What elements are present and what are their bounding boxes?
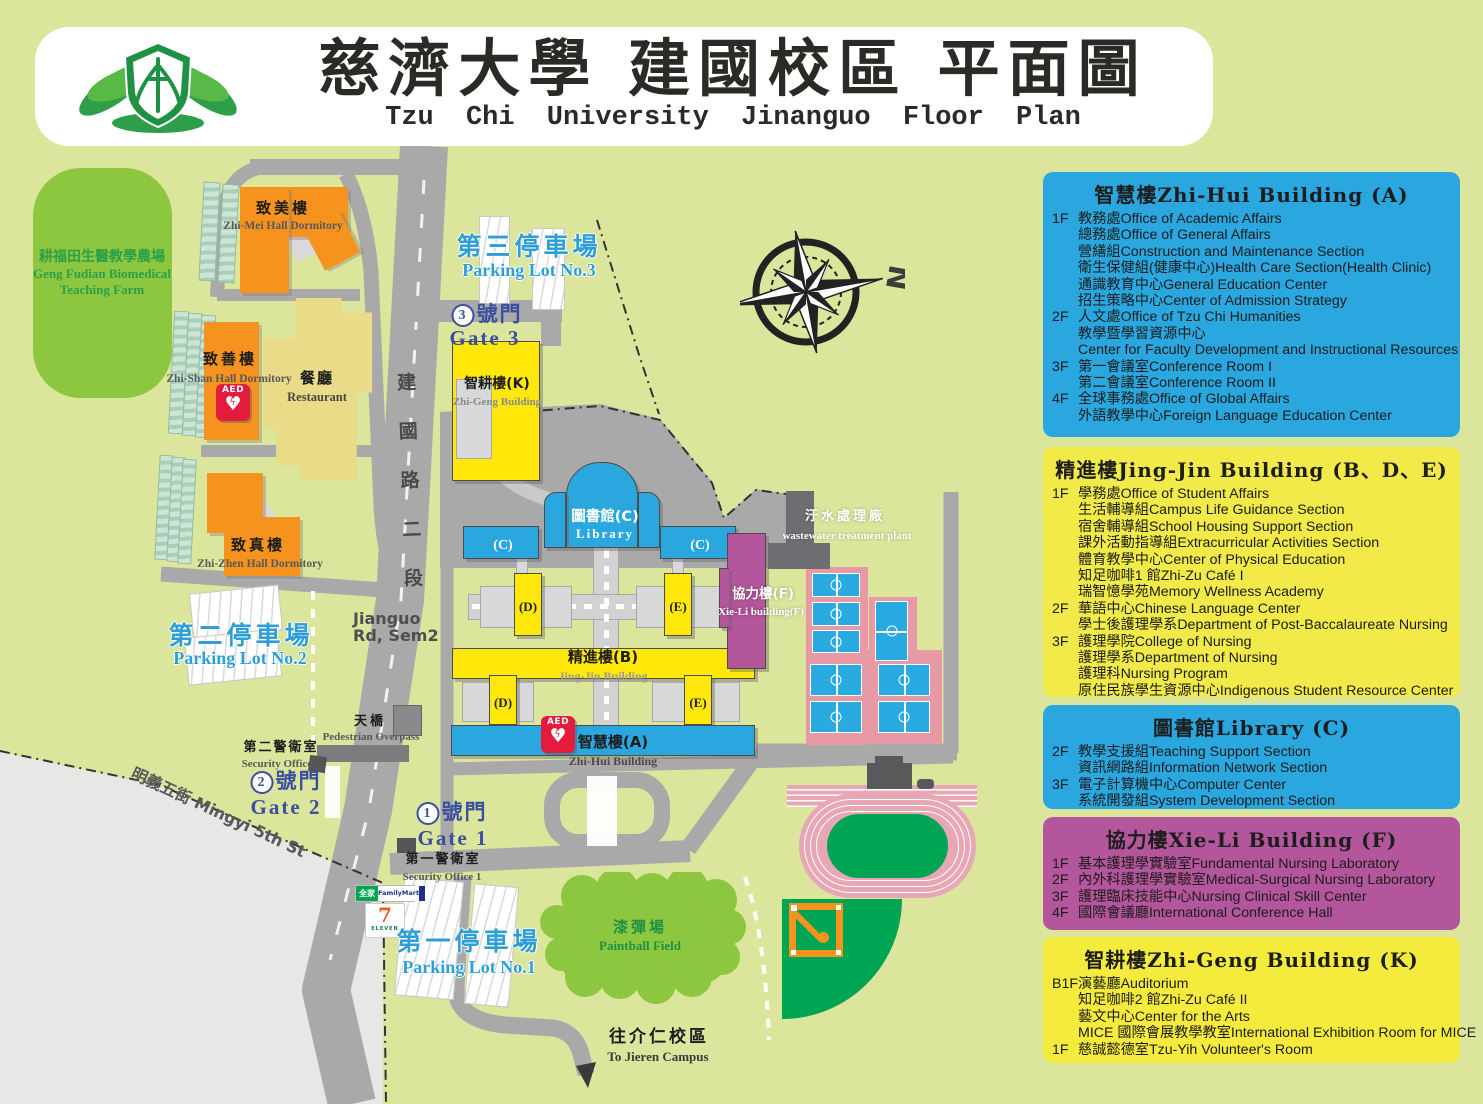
jieren-label-zh: 往介仁校區 — [609, 1027, 709, 1047]
legend-items: 1F學務處Office of Student Affairs生活輔導組Campu… — [1052, 486, 1451, 699]
farm-label-en: Geng Fudian Biomedical — [33, 266, 171, 281]
basketball-court — [878, 664, 930, 696]
paintball-label-en: Paintball Field — [599, 938, 681, 953]
aed-badge-zhihui: AED♥ϟ — [541, 716, 575, 753]
farm-label-zh: 耕福田生醫教學農場 — [39, 249, 165, 265]
jingjin-label-zh: 精進樓(B) — [568, 648, 638, 666]
zhihui-label-en: Zhi-Hui Building — [569, 754, 657, 768]
legend-title: 圖書館Library (C) — [1052, 712, 1451, 741]
basketball-court — [810, 664, 862, 696]
grandstand-top — [875, 756, 903, 764]
wastewater-label-zh: 汙水處理廠 — [805, 509, 885, 524]
zhizhen-label-zh: 致真樓 — [231, 536, 285, 554]
wing-letter-c-west: (C) — [493, 538, 512, 553]
familymart-en: FamilyMart — [378, 886, 419, 901]
legend-item: 2F內外科護理學實驗室Medical-Surgical Nursing Labo… — [1052, 872, 1451, 888]
poster-header: 慈濟大學 建國校區 平面圖 Tzu Chi University Jinangu… — [35, 27, 1213, 146]
zhishan-label-en: Zhi-Shan Hall Dormitory — [166, 373, 291, 385]
legend-item: 1F慈誠懿德室Tzu-Yih Volunteer's Room — [1052, 1042, 1451, 1058]
gate3-label-zh: 3號門 — [452, 302, 523, 326]
legend-item: 課外活動指導組Extracurricular Activities Sectio… — [1052, 535, 1451, 551]
parking1-label-zh: 第一停車場 — [396, 929, 541, 956]
legend-item: 1F學務處Office of Student Affairs — [1052, 486, 1451, 502]
legend-panel-xieli: 協力樓Xie-Li Building (F) 1F基本護理學實驗室Fundame… — [1043, 817, 1460, 930]
parking2-label-en: Parking Lot No.2 — [173, 648, 307, 668]
legend-title: 協力樓Xie-Li Building (F) — [1052, 824, 1451, 853]
legend-item: 4F全球事務處Office of Global Affairs — [1052, 391, 1451, 407]
poster-subtitle: Tzu Chi University Jinanguo Floor Plan — [253, 103, 1213, 133]
legend-item: 衛生保健組(健康中心)Health Care Section(Health Cl… — [1052, 260, 1451, 276]
legend-item: MICE 國際會展教學教室International Exhibition Ro… — [1052, 1025, 1451, 1041]
legend-item: 3F護理學院College of Nursing — [1052, 634, 1451, 650]
wing-letter-d-north: (D) — [519, 599, 537, 614]
jingjin-label-en: Jing-Jin Building — [558, 669, 647, 683]
restaurant-label-en: Restaurant — [287, 390, 347, 404]
aed-badge-dorm: AED♥ϟ — [216, 384, 250, 421]
parking1-label-en: Parking Lot No.1 — [402, 957, 536, 977]
library-lobe — [544, 492, 566, 548]
overpass-label-en: Pedestrian Overpass — [323, 731, 420, 743]
xieli-building-notch — [719, 568, 729, 628]
paintball-label-zh: 漆彈場 — [613, 918, 667, 936]
legend-item: 資訊網路組Information Network Section — [1052, 760, 1451, 776]
aed-heart-icon: ♥ϟ — [549, 728, 566, 745]
poster-title: 慈濟大學 建國校區 平面圖 — [253, 37, 1213, 101]
tennis-court — [812, 602, 860, 626]
zhihui-label-zh: 智慧樓(A) — [578, 733, 648, 751]
wing-letter-e-north: (E) — [669, 599, 686, 614]
legend-item: 瑞智憶學苑Memory Wellness Academy — [1052, 584, 1451, 600]
legend-item: 體育教學中心Center of Physical Education — [1052, 552, 1451, 568]
legend-item: 藝文中心Center for the Arts — [1052, 1009, 1451, 1025]
legend-item: 2F華語中心Chinese Language Center — [1052, 601, 1451, 617]
baseball-diamond — [789, 903, 843, 957]
gate1-label-en: Gate 1 — [418, 826, 489, 850]
gate1-label-zh: 1號門 — [417, 800, 488, 824]
legend-item: 護理科Nursing Program — [1052, 666, 1451, 682]
legend-item: 第二會議室Conference Room II — [1052, 375, 1451, 391]
legend-item: 通識教育中心General Education Center — [1052, 277, 1451, 293]
equipment-shed — [917, 779, 934, 789]
legend-item: 1F基本護理學實驗室Fundamental Nursing Laboratory — [1052, 856, 1451, 872]
compass-rose: N — [740, 224, 905, 369]
legend-panel-library: 圖書館Library (C) 2F教學支援組Teaching Support S… — [1043, 705, 1460, 809]
legend-items: 1F教務處Office of Academic Affairs總務處Office… — [1052, 211, 1451, 424]
parking3-label-en: Parking Lot No.3 — [462, 260, 596, 280]
legend-item: 知足咖啡2 館Zhi-Zu Café II — [1052, 992, 1451, 1008]
wing-letter-e-south: (E) — [689, 695, 706, 710]
legend-item: B1F演藝廳Auditorium — [1052, 976, 1451, 992]
tennis-court — [812, 573, 860, 597]
campus-map-poster: 慈濟大學 建國校區 平面圖 Tzu Chi University Jinangu… — [0, 0, 1483, 1104]
basketball-court — [810, 701, 862, 733]
legend-item: 知足咖啡1 館Zhi-Zu Café I — [1052, 568, 1451, 584]
legend-item: 系統開發組System Development Section — [1052, 793, 1451, 809]
gate2-label-en: Gate 2 — [251, 795, 322, 819]
wing-letter-d-south: (D) — [494, 695, 512, 710]
tzu-chi-logo — [63, 35, 253, 139]
legend-item: 護理學系Department of Nursing — [1052, 650, 1451, 666]
legend-item: 2F教學支援組Teaching Support Section — [1052, 744, 1451, 760]
jieren-label-en: To Jieren Campus — [607, 1049, 708, 1064]
library-lobe — [638, 492, 660, 548]
parking2-label-zh: 第二停車場 — [168, 623, 313, 650]
zhishan-label-zh: 致善樓 — [203, 350, 257, 368]
legend-items: 1F基本護理學實驗室Fundamental Nursing Laboratory… — [1052, 856, 1451, 922]
legend-item: 教學暨學習資源中心 — [1052, 326, 1451, 342]
parking3-label-zh: 第三停車場 — [456, 234, 601, 261]
legend-title: 精進樓Jing-Jin Building (B、D、E) — [1052, 454, 1451, 483]
security1-label-zh: 第一警衛室 — [405, 852, 480, 867]
legend-item: Center for Faculty Development and Instr… — [1052, 342, 1451, 358]
security1-label-en: Security Office 1 — [403, 871, 482, 883]
wastewater-plant — [768, 543, 830, 569]
familymart-stripe — [419, 886, 425, 901]
zhimei-label-en: Zhi-Mei Hall Dormitory — [223, 220, 342, 232]
security2-label-en: Security Office 2 — [242, 758, 321, 770]
legend-title: 智耕樓Zhi-Geng Building (K) — [1052, 944, 1451, 973]
pedestrian-overpass — [317, 745, 409, 762]
legend-item: 3F護理臨床技能中心Nursing Clinical Skill Center — [1052, 889, 1451, 905]
legend-items: B1F演藝廳Auditorium知足咖啡2 館Zhi-Zu Café II藝文中… — [1052, 976, 1451, 1058]
familymart-sign: 全家 FamilyMart — [355, 885, 415, 902]
legend-item: 招生策略中心Center of Admission Strategy — [1052, 293, 1451, 309]
legend-panel-zhigeng: 智耕樓Zhi-Geng Building (K) B1F演藝廳Auditoriu… — [1043, 937, 1460, 1063]
legend-item: 4F國際會議廳International Conference Hall — [1052, 905, 1451, 921]
legend-item: 外語教學中心Foreign Language Education Center — [1052, 408, 1451, 424]
xieli-label-zh: 協力樓(F) — [732, 586, 794, 602]
legend-items: 2F教學支援組Teaching Support Section資訊網路組Info… — [1052, 744, 1451, 810]
restaurant-label-zh: 餐廳 — [300, 369, 334, 387]
zhizhen-label-en: Zhi-Zhen Hall Dormitory — [197, 558, 323, 570]
wastewater-label-en: wastewater treatment plant — [782, 530, 911, 542]
gate2-label-zh: 2號門 — [251, 769, 322, 793]
running-track — [799, 794, 976, 898]
xieli-label-en: Xie-Li building(F) — [718, 606, 804, 618]
library-label-zh: 圖書館(C) — [571, 509, 638, 525]
seven-logo: 7 — [366, 904, 404, 926]
zhigeng-label-en: Zhi-Geng Building — [453, 396, 541, 408]
grandstand — [867, 763, 912, 789]
legend-item: 原住民族學生資源中心Indigenous Student Resource Ce… — [1052, 683, 1451, 699]
farm-label-en: Teaching Farm — [60, 282, 144, 297]
library-label-en: Library — [576, 526, 634, 541]
basketball-court — [875, 601, 908, 661]
zhigeng-label-zh: 智耕樓(K) — [464, 376, 530, 392]
legend-item: 學士後護理學系Department of Post-Baccalaureate … — [1052, 617, 1451, 633]
gate3-label-en: Gate 3 — [450, 326, 521, 350]
legend-item: 3F電子計算機中心Computer Center — [1052, 777, 1451, 793]
legend-item: 1F教務處Office of Academic Affairs — [1052, 211, 1451, 227]
familymart-zh: 全家 — [356, 886, 378, 901]
legend-panel-jingjin: 精進樓Jing-Jin Building (B、D、E) 1F學務處Office… — [1043, 447, 1460, 697]
tennis-court — [812, 630, 860, 653]
aed-heart-icon: ♥ϟ — [224, 396, 241, 413]
legend-item: 總務處Office of General Affairs — [1052, 227, 1451, 243]
legend-panel-zhihui: 智慧樓Zhi-Hui Building (A) 1F教務處Office of A… — [1043, 172, 1460, 437]
legend-item: 2F人文處Office of Tzu Chi Humanities — [1052, 309, 1451, 325]
compass-north-label: N — [878, 262, 905, 293]
wing-letter-c-east: (C) — [690, 538, 709, 553]
legend-item: 3F第一會議室Conference Room I — [1052, 359, 1451, 375]
legend-item: 生活輔導組Campus Life Guidance Section — [1052, 502, 1451, 518]
legend-item: 營繕組Construction and Maintenance Section — [1052, 244, 1451, 260]
legend-title: 智慧樓Zhi-Hui Building (A) — [1052, 179, 1451, 208]
legend-item: 宿舍輔導組School Housing Support Section — [1052, 519, 1451, 535]
basketball-court — [878, 701, 930, 733]
